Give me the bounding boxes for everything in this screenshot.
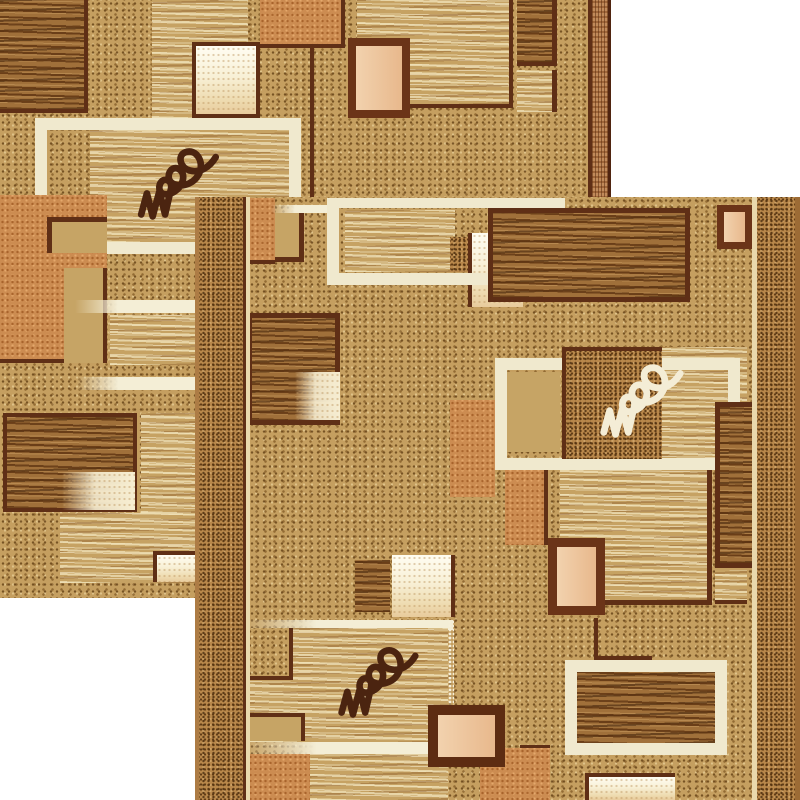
wavy-panel-dark-small (517, 0, 557, 66)
product-photo-canvas (0, 0, 800, 800)
wavy-patch-light (715, 570, 747, 604)
rug-edge-stripe (795, 197, 800, 800)
tan-block (275, 213, 304, 262)
framed-peach-rect (348, 38, 410, 118)
cream-gradient-square (392, 555, 455, 617)
accent-square-orange (260, 0, 345, 48)
accent-block-orange (243, 754, 310, 800)
cream-gradient-block (585, 773, 675, 800)
wavy-panel-light-small (517, 70, 557, 112)
signature-scribble-dark (330, 637, 425, 722)
speckle-square (247, 628, 293, 680)
cream-block (153, 551, 200, 582)
border-speckle-band (757, 197, 795, 800)
wavy-panel-dark-tall (715, 402, 752, 568)
framed-peach-rect (548, 538, 605, 615)
signature-scribble-cream (592, 347, 690, 449)
rug-front (195, 197, 800, 800)
divider-line-vertical (310, 48, 314, 198)
wavy-panel-dark-small (355, 560, 390, 612)
framed-wavy-rect-large (488, 208, 690, 302)
cream-stripe (76, 377, 197, 390)
wavy-patch-light (110, 315, 198, 365)
border-cream-stripe (246, 197, 250, 800)
cream-window-frame (565, 660, 727, 755)
cream-stripe (75, 300, 197, 313)
framed-peach-rect-small (717, 205, 752, 249)
cream-stripe (243, 742, 453, 754)
divider-line-vertical (594, 618, 598, 660)
border-speckle-band (199, 197, 243, 800)
tan-block (247, 713, 305, 741)
accent-block-orange (505, 470, 548, 545)
wavy-panel-dark (0, 0, 88, 113)
framed-peach-rect-large (428, 705, 505, 767)
tan-block (64, 268, 107, 363)
accent-band-orange (450, 400, 495, 497)
cream-gradient-block (295, 372, 340, 420)
wavy-patch-light (141, 413, 198, 513)
cream-gradient-block (62, 472, 135, 510)
framed-tan-rect-cut (47, 217, 107, 253)
cream-gradient-square (192, 42, 260, 118)
